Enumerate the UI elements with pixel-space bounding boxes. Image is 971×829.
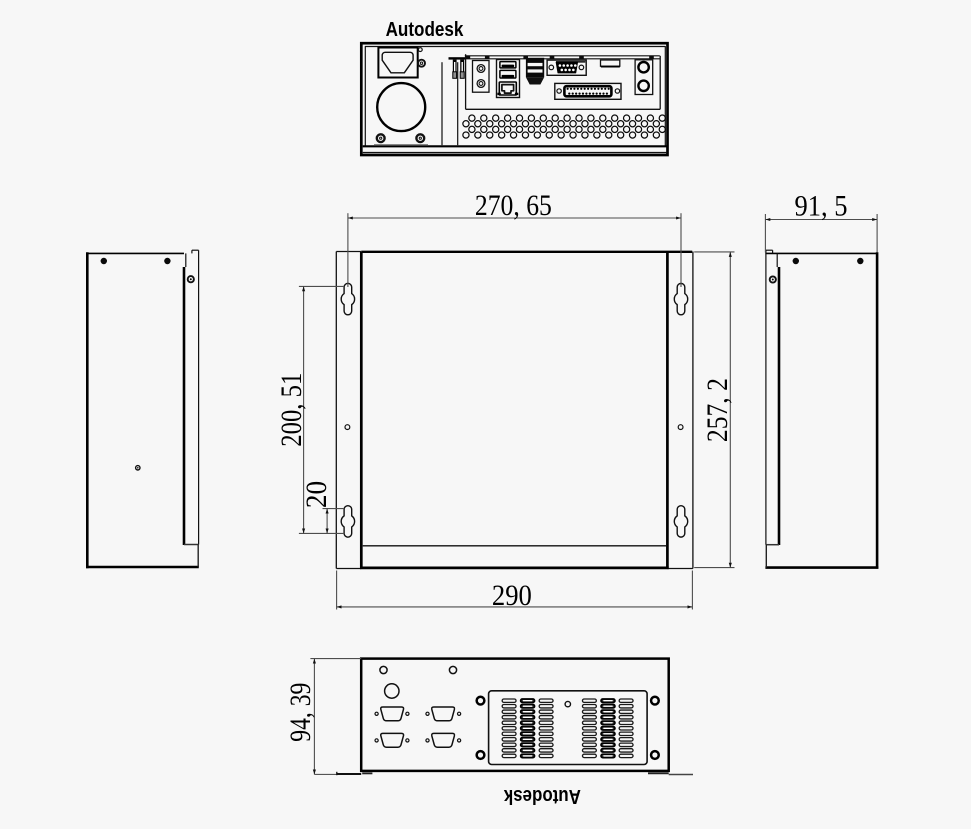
svg-text:257, 2: 257, 2 bbox=[702, 378, 734, 442]
svg-text:94, 39: 94, 39 bbox=[285, 683, 317, 742]
svg-text:290: 290 bbox=[492, 580, 532, 612]
svg-text:Autodesk: Autodesk bbox=[386, 19, 465, 41]
svg-text:200, 51: 200, 51 bbox=[276, 373, 308, 447]
svg-text:270, 65: 270, 65 bbox=[475, 190, 552, 222]
svg-text:20: 20 bbox=[301, 481, 333, 508]
svg-text:Autodesk: Autodesk bbox=[503, 785, 581, 807]
svg-text:91, 5: 91, 5 bbox=[795, 190, 848, 222]
